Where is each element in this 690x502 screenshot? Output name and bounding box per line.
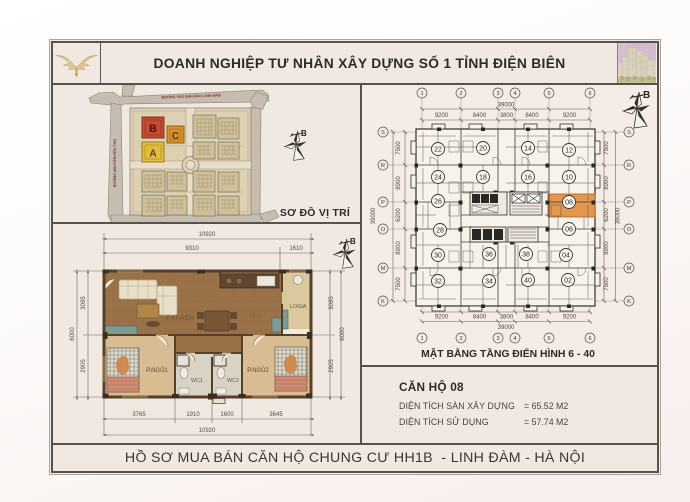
svg-text:39000: 39000 (616, 207, 622, 224)
svg-text:7500: 7500 (396, 141, 402, 155)
svg-text:22: 22 (434, 147, 442, 154)
svg-text:K: K (381, 299, 385, 305)
svg-text:38: 38 (522, 252, 530, 259)
svg-text:8400: 8400 (473, 113, 487, 119)
svg-text:9200: 9200 (563, 315, 577, 321)
svg-text:39000: 39000 (498, 103, 515, 109)
svg-text:B: B (301, 129, 307, 138)
svg-text:1600: 1600 (220, 412, 234, 418)
svg-text:2905: 2905 (81, 359, 87, 373)
svg-text:O: O (627, 227, 632, 233)
svg-text:S: S (627, 130, 631, 136)
svg-text:6: 6 (588, 336, 591, 342)
svg-text:30: 30 (434, 253, 442, 260)
svg-text:P.NGỦ1: P.NGỦ1 (146, 367, 168, 374)
svg-text:M: M (381, 266, 386, 272)
svg-text:BẾP: BẾP (249, 313, 261, 320)
svg-text:39000: 39000 (371, 207, 377, 224)
svg-text:5: 5 (547, 91, 550, 97)
svg-text:10: 10 (565, 175, 573, 182)
svg-text:26: 26 (434, 199, 442, 206)
svg-text:P: P (381, 200, 385, 206)
svg-text:14: 14 (524, 146, 532, 153)
svg-text:ĐƯỜNG NGUYỄN HỮU THỌ: ĐƯỜNG NGUYỄN HỮU THỌ (112, 139, 117, 187)
svg-text:1610: 1610 (289, 246, 303, 252)
svg-text:06: 06 (565, 227, 573, 234)
svg-text:08: 08 (565, 200, 573, 207)
svg-text:K: K (627, 299, 631, 305)
svg-text:6200: 6200 (396, 208, 402, 222)
svg-text:2: 2 (459, 91, 462, 97)
svg-text:9200: 9200 (435, 315, 449, 321)
svg-text:3765: 3765 (132, 412, 146, 418)
svg-text:8900: 8900 (396, 241, 402, 255)
svg-text:9200: 9200 (563, 113, 577, 119)
svg-text:10920: 10920 (199, 232, 216, 238)
svg-text:3095: 3095 (81, 296, 87, 310)
svg-text:B: B (350, 237, 356, 246)
svg-text:34: 34 (485, 279, 493, 286)
svg-text:8400: 8400 (525, 113, 539, 119)
svg-text:9310: 9310 (185, 246, 199, 252)
svg-text:S: S (381, 130, 385, 136)
svg-text:40: 40 (524, 278, 532, 285)
svg-text:B: B (149, 123, 157, 135)
svg-text:WC2: WC2 (227, 378, 239, 384)
svg-text:7500: 7500 (604, 277, 610, 291)
svg-text:16: 16 (524, 175, 532, 182)
svg-text:1910: 1910 (186, 412, 200, 418)
svg-text:8900: 8900 (604, 176, 610, 190)
svg-text:4: 4 (513, 336, 516, 342)
svg-text:1: 1 (420, 91, 423, 97)
svg-text:3: 3 (496, 336, 499, 342)
svg-text:P: P (627, 200, 631, 206)
svg-text:P.KHÁCH: P.KHÁCH (166, 315, 194, 322)
svg-text:6000: 6000 (340, 327, 346, 341)
svg-text:O: O (381, 227, 386, 233)
svg-text:3800: 3800 (500, 315, 514, 321)
svg-text:SƠ ĐỒ VỊ TRÍ: SƠ ĐỒ VỊ TRÍ (280, 206, 351, 219)
svg-text:9200: 9200 (435, 113, 449, 119)
svg-text:8400: 8400 (473, 315, 487, 321)
svg-text:36: 36 (485, 252, 493, 259)
svg-text:28: 28 (436, 228, 444, 235)
svg-text:18: 18 (479, 175, 487, 182)
svg-text:6000: 6000 (70, 327, 76, 341)
svg-text:7500: 7500 (396, 277, 402, 291)
svg-text:8400: 8400 (525, 315, 539, 321)
svg-text:3645: 3645 (269, 412, 283, 418)
svg-text:M: M (627, 266, 632, 272)
svg-text:1: 1 (420, 336, 423, 342)
svg-text:WC1: WC1 (191, 378, 203, 384)
svg-text:5: 5 (547, 336, 550, 342)
svg-text:39000: 39000 (498, 325, 515, 331)
svg-text:8900: 8900 (396, 176, 402, 190)
svg-text:3095: 3095 (329, 296, 335, 310)
svg-text:6200: 6200 (604, 208, 610, 222)
svg-text:3800: 3800 (500, 113, 514, 119)
svg-text:24: 24 (434, 175, 442, 182)
svg-text:10920: 10920 (199, 428, 216, 434)
svg-text:12: 12 (565, 148, 573, 155)
svg-text:R: R (627, 163, 631, 169)
svg-text:R: R (381, 163, 385, 169)
svg-text:LOGIA: LOGIA (290, 304, 307, 310)
svg-text:MẶT BẰNG TẦNG ĐIỂN HÌNH 6 - 40: MẶT BẰNG TẦNG ĐIỂN HÌNH 6 - 40 (421, 347, 595, 360)
svg-text:02: 02 (564, 278, 572, 285)
svg-text:2: 2 (459, 336, 462, 342)
svg-text:A: A (149, 149, 156, 160)
svg-text:7500: 7500 (604, 141, 610, 155)
svg-text:P.NGỦ2: P.NGỦ2 (247, 367, 269, 374)
svg-text:B: B (643, 90, 650, 101)
svg-text:6: 6 (588, 91, 591, 97)
svg-text:3: 3 (496, 91, 499, 97)
svg-text:04: 04 (562, 253, 570, 260)
svg-text:C: C (172, 131, 179, 142)
svg-text:32: 32 (434, 279, 442, 286)
svg-text:2905: 2905 (329, 359, 335, 373)
svg-text:4: 4 (513, 91, 516, 97)
svg-text:8900: 8900 (604, 241, 610, 255)
svg-text:20: 20 (479, 146, 487, 153)
